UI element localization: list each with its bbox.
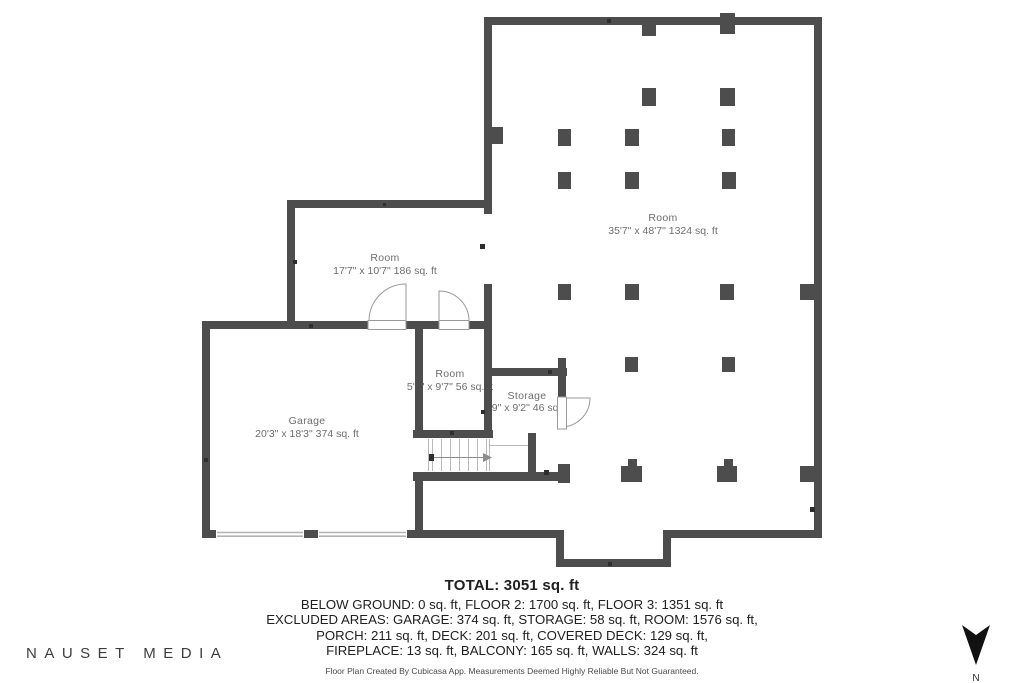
door-swing-room-left [368,284,406,330]
room-dimensions: 6'9" x 9'2" 46 sq. ft [484,402,570,414]
room-dimensions: 5'9" x 9'7" 56 sq. ft [407,381,493,394]
room-name: Storage [484,390,570,402]
room-label-main: Room 35'7" x 48'7" 1324 sq. ft [608,212,718,238]
garage-door-openings [217,533,406,537]
north-label: N [956,673,996,683]
room-name: Room [407,368,493,381]
disclaimer-text: Floor Plan Created By Cubicasa App. Meas… [0,666,1024,676]
summary-excluded-1: EXCLUDED AREAS: GARAGE: 374 sq. ft, STOR… [0,612,1024,627]
wall-segments [202,17,822,567]
door-swing-room-right [439,291,469,330]
summary-total: TOTAL: 3051 sq. ft [0,577,1024,594]
room-dimensions: 20'3" x 18'3" 374 sq. ft [255,428,359,441]
summary-excluded-2: PORCH: 211 sq. ft, DECK: 201 sq. ft, COV… [0,628,1024,643]
floor-plan-page: Room 35'7" x 48'7" 1324 sq. ft Room 17'7… [0,0,1024,683]
brand-logo: NAUSET MEDIA [26,645,228,662]
stair-treads [429,439,529,471]
room-label-storage: Storage 6'9" x 9'2" 46 sq. ft [484,390,570,414]
room-name: Garage [255,415,359,428]
compass: N [956,621,996,683]
room-name: Room [608,212,718,225]
measurement-ticks [204,19,815,566]
summary-floors: BELOW GROUND: 0 sq. ft, FLOOR 2: 1700 sq… [0,597,1024,612]
room-label-small: Room 5'9" x 9'7" 56 sq. ft [407,368,493,394]
north-arrow-icon [956,621,996,667]
room-label-upper: Room 17'7" x 10'7" 186 sq. ft [333,252,437,278]
stair-direction-arrow [429,453,492,462]
room-label-garage: Garage 20'3" x 18'3" 374 sq. ft [255,415,359,441]
room-name: Room [333,252,437,265]
room-dimensions: 35'7" x 48'7" 1324 sq. ft [608,225,718,238]
room-dimensions: 17'7" x 10'7" 186 sq. ft [333,265,437,278]
